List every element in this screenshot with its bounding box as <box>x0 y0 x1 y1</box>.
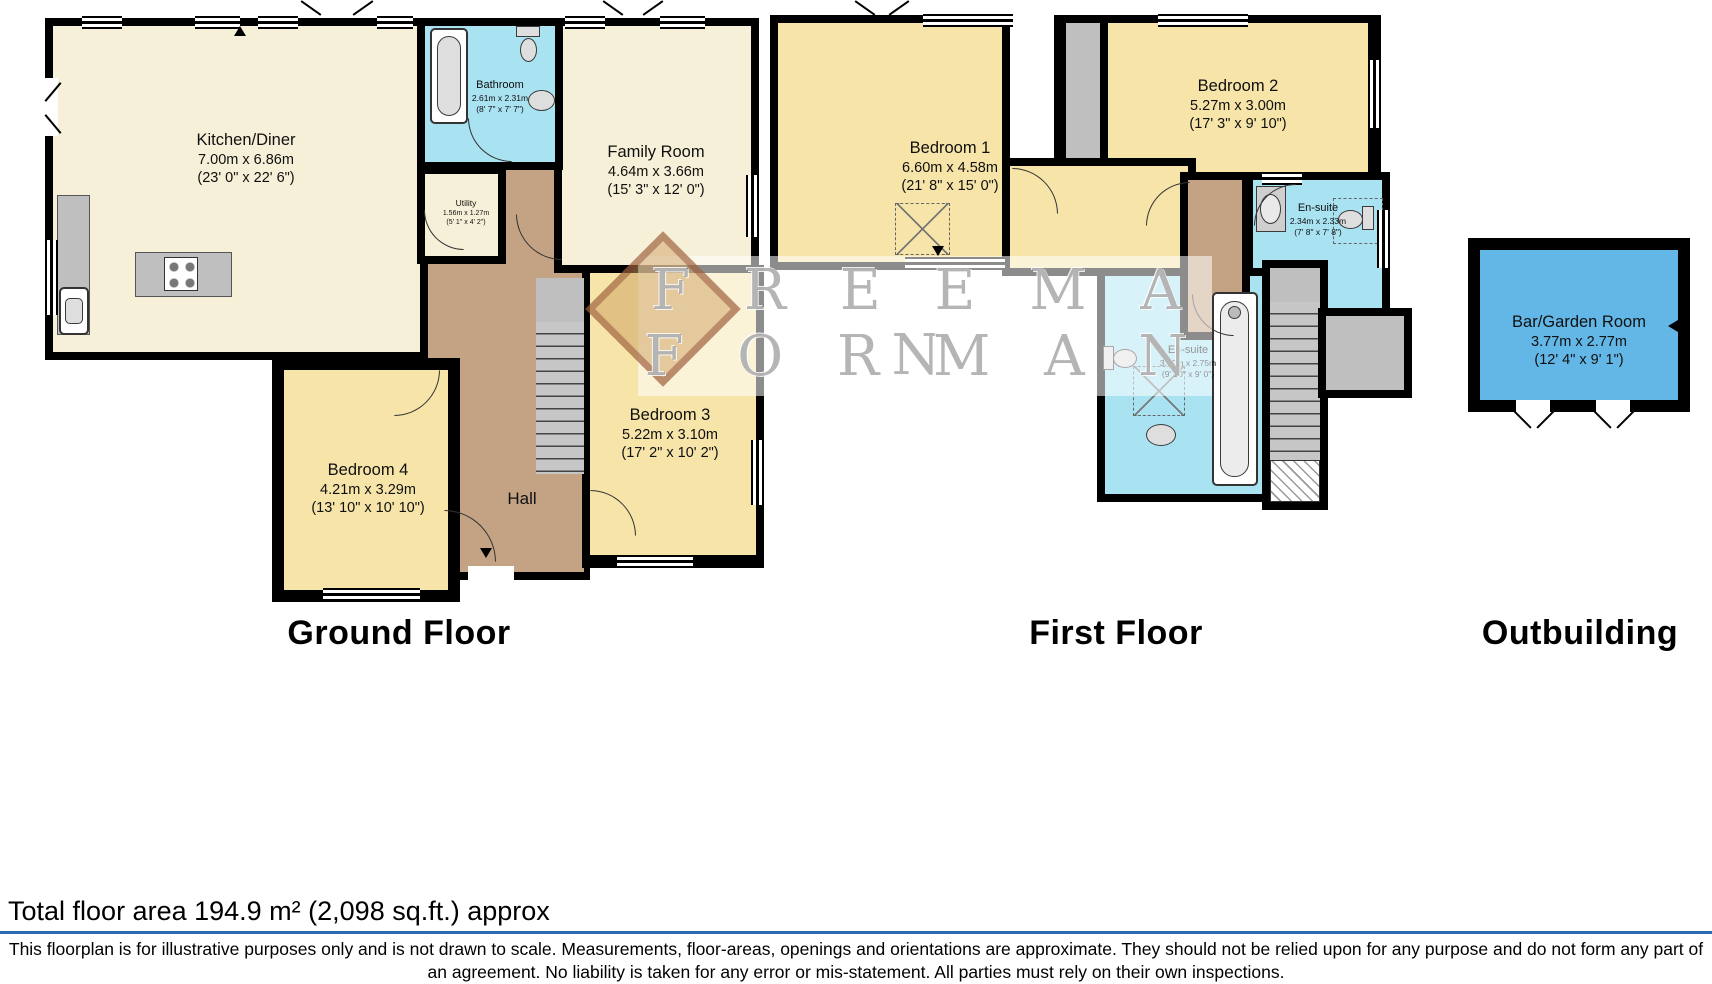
room-dims-metric: 3.77m x 2.77m <box>1479 333 1679 351</box>
total-floor-area: Total floor area 194.9 m² (2,098 sq.ft.)… <box>8 896 908 927</box>
ground-floor-label: Ground Floor <box>249 614 549 653</box>
first-floor-label: First Floor <box>966 614 1266 653</box>
outbuilding-plan: Bar/Garden Room 3.77m x 2.77m (12' 4" x … <box>0 0 1712 620</box>
floorplan-page: { "colors": { "wall": "#000000", "cream"… <box>0 0 1712 976</box>
outbuilding-label: Outbuilding <box>1430 614 1712 653</box>
disclaimer-text: This floorplan is for illustrative purpo… <box>0 938 1712 984</box>
outbuilding-door-opening-1 <box>1516 400 1550 412</box>
room-label-bar: Bar/Garden Room 3.77m x 2.77m (12' 4" x … <box>1479 312 1679 369</box>
room-dims-imperial: (12' 4" x 9' 1") <box>1479 351 1679 369</box>
outbuilding-door-opening-2 <box>1596 400 1630 412</box>
footer-divider <box>0 931 1712 934</box>
room-name: Bar/Garden Room <box>1479 312 1679 333</box>
